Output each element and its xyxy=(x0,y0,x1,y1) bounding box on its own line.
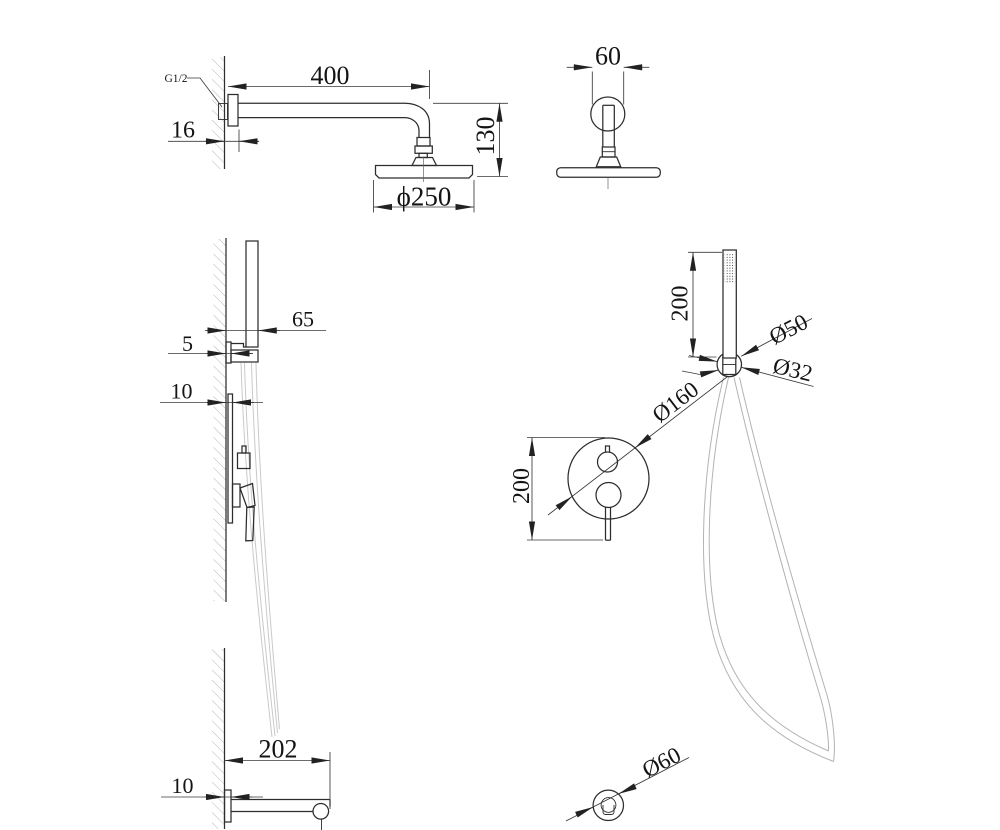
spout-outlet-front-view: Ø60 xyxy=(566,742,689,821)
dim-holder-offset: 65 xyxy=(292,307,314,332)
wall-spout-side-view: 202 10 xyxy=(161,648,330,830)
dim-spout-length: 202 xyxy=(259,735,298,764)
ball-joint-nut xyxy=(417,138,430,147)
dim-arm-plate-depth: 16 xyxy=(171,118,195,144)
shower-system-drawing: G1/2 400 16 130 ϕ250 xyxy=(0,0,1000,830)
shower-hose xyxy=(704,378,834,762)
arm-escutcheon xyxy=(228,95,238,127)
dim-head-drop: 130 xyxy=(471,117,500,156)
overhead-shower-front-view: 60 xyxy=(557,42,661,190)
outlet-ring xyxy=(593,790,623,820)
overhead-shower-side-view: G1/2 400 16 130 ϕ250 xyxy=(165,56,509,213)
dim-thread-size: G1/2 xyxy=(165,73,188,85)
spray-face xyxy=(725,253,735,282)
diverter-knob-side xyxy=(238,453,251,469)
holder-bracket xyxy=(231,350,258,362)
head-cone xyxy=(412,158,437,166)
arm-elbow xyxy=(405,103,430,137)
dim-spout-plate-depth: 10 xyxy=(172,773,194,798)
technical-drawing-page: G1/2 400 16 130 ϕ250 xyxy=(0,0,1000,830)
dim-hose-nut-diameter: Ø32 xyxy=(771,353,815,387)
dim-valve-plate-height: 200 xyxy=(509,468,535,504)
dim-outlet-diameter: Ø60 xyxy=(638,742,685,782)
dim-arm-length: 400 xyxy=(311,61,350,90)
dim-holder-plate-depth: 5 xyxy=(182,331,193,356)
dim-valve-plate-diameter: Ø160 xyxy=(648,377,704,428)
shower-head-side xyxy=(376,166,473,179)
hand-shower-holder-side-view: 65 5 10 xyxy=(160,238,326,737)
hand-shower-front-view: 200 Ø50 Ø32 xyxy=(668,250,835,762)
mixer-hub xyxy=(596,483,621,508)
valve-trim-side xyxy=(228,394,233,523)
arm-flange xyxy=(591,97,625,131)
dim-head-diameter: ϕ250 xyxy=(397,182,452,212)
mixer-valve-front-view: Ø160 200 xyxy=(509,377,727,541)
dim-handshower-length: 200 xyxy=(668,286,694,322)
holder-plate xyxy=(226,342,231,363)
dim-handshower-diameter: Ø50 xyxy=(765,309,812,349)
spout-plate xyxy=(225,790,232,822)
shower-head-front xyxy=(557,168,661,178)
dim-valve-plate-depth: 10 xyxy=(171,379,193,404)
hand-shower-wand-side xyxy=(246,241,258,347)
wall-hatch xyxy=(214,239,227,601)
wall-hatch xyxy=(212,649,225,829)
dim-arm-plate-width: 60 xyxy=(595,42,621,71)
spout-aerator xyxy=(313,804,329,820)
mixer-hub-side xyxy=(233,484,241,507)
